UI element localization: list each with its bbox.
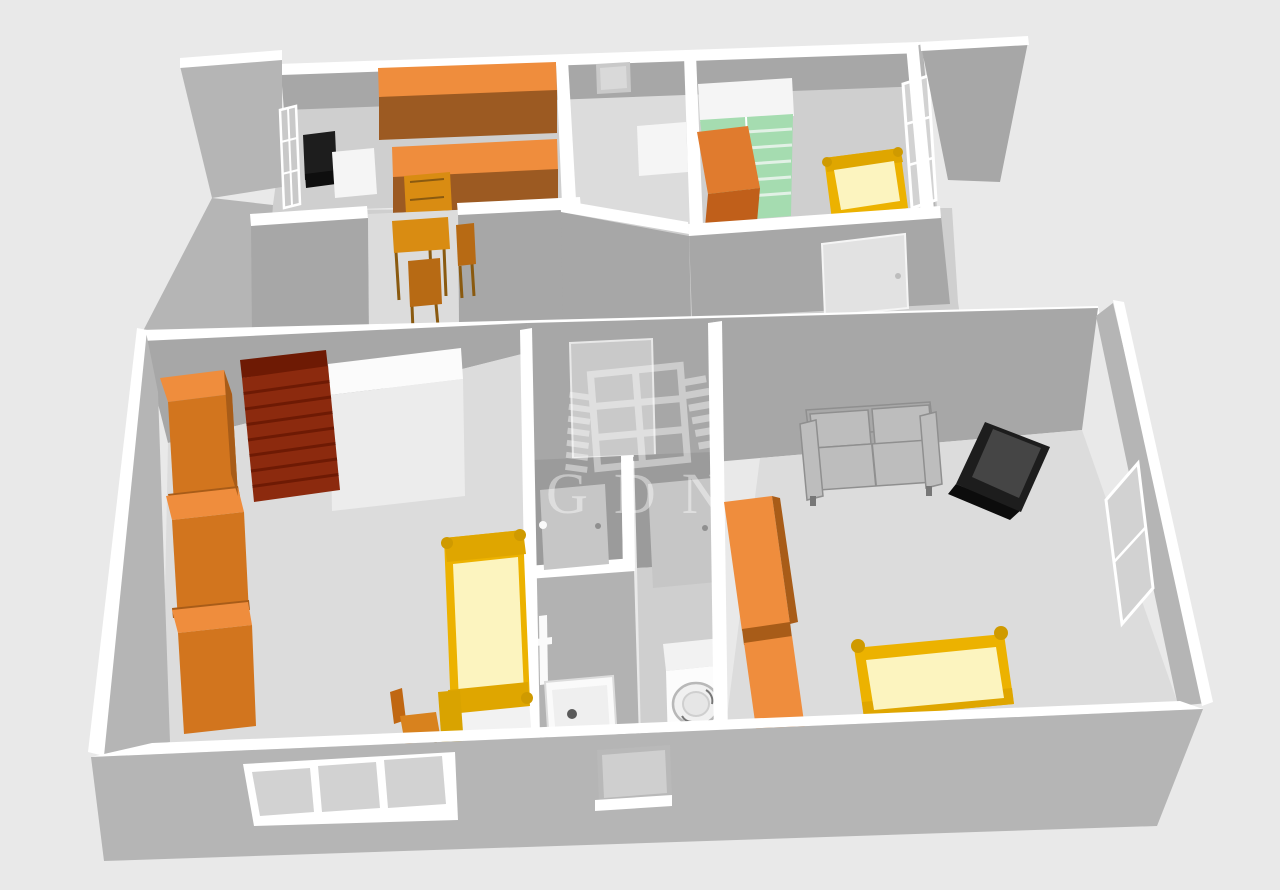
study-desk [404, 172, 452, 214]
red-bookshelf [240, 350, 340, 502]
hallway-chair [456, 223, 476, 266]
hallway-leaning-door [822, 234, 908, 316]
hallway-desk [392, 217, 450, 253]
bedroom-front-window [243, 752, 458, 826]
toddler-bed [822, 147, 908, 220]
middle-room-window [596, 62, 631, 94]
floor-plan-render: GDN [0, 0, 1280, 890]
front-small-window [595, 745, 672, 811]
middle-room-door [637, 122, 688, 176]
wardrobe-c-front [178, 625, 256, 734]
left-exterior-panel-face [180, 58, 282, 198]
right-extension-wall-face [922, 42, 1028, 182]
gdn-watermark-text: GDN [546, 461, 750, 526]
bedroom-white-cabinet [328, 348, 465, 511]
front-block [88, 300, 1213, 861]
back-block [140, 36, 1029, 335]
study-wardrobe-back [378, 62, 557, 140]
study-window [280, 106, 300, 208]
white-stand [332, 148, 377, 198]
tv-black [303, 131, 337, 188]
study-front-wall-left [251, 216, 369, 335]
hallway-stool [408, 258, 442, 307]
floor-plan-svg: GDN [0, 0, 1280, 890]
child-orange-cabinet [697, 126, 760, 227]
